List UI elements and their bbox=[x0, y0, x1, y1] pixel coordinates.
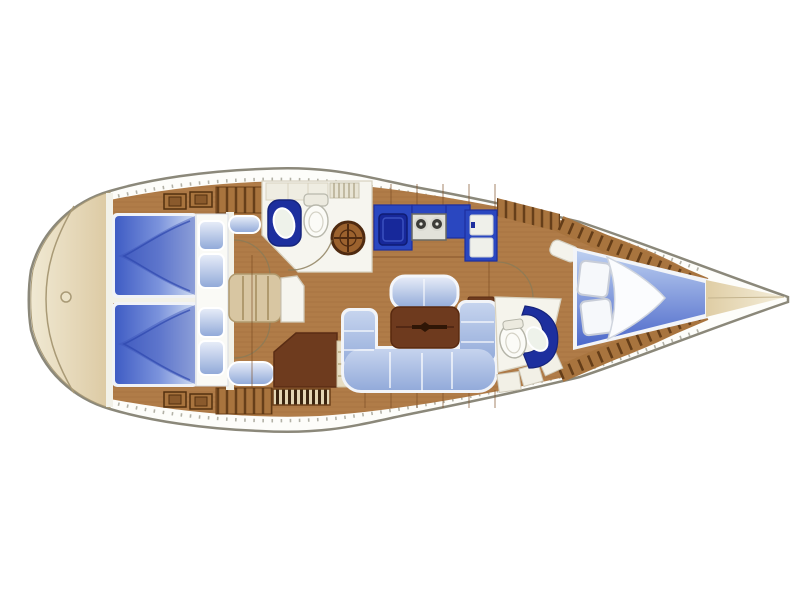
bench-cushion-starboard bbox=[228, 362, 274, 385]
boat-plan-svg bbox=[0, 0, 800, 600]
shower-grate bbox=[332, 222, 364, 254]
aft-cabin-starboard-berth bbox=[112, 302, 198, 387]
stern-fitting-ring bbox=[61, 292, 71, 302]
companionway-steps bbox=[229, 274, 304, 322]
louver-vent bbox=[330, 183, 359, 198]
galley-sink bbox=[379, 214, 407, 245]
floor-grate bbox=[273, 389, 330, 405]
salon-table bbox=[391, 307, 459, 348]
aft-head-toilet bbox=[304, 194, 328, 237]
aft-cabin-port-berth bbox=[112, 213, 198, 298]
yacht-floorplan-image bbox=[0, 0, 800, 600]
aft-head-sink bbox=[268, 200, 301, 246]
fridge bbox=[465, 210, 497, 261]
bench-cushion-port bbox=[229, 216, 260, 233]
stove bbox=[412, 214, 446, 240]
